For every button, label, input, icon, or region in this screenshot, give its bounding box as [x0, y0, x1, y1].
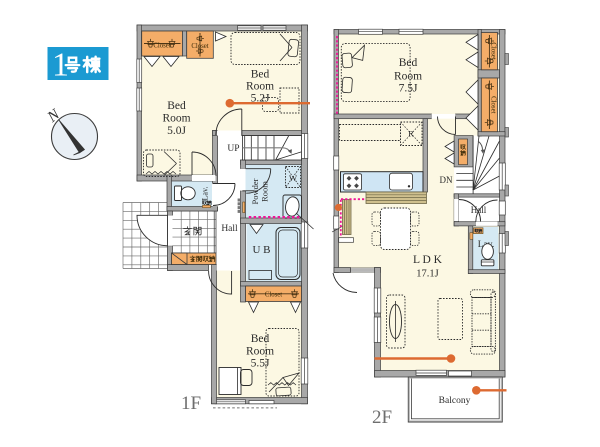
- svg-text:Bed: Bed: [251, 69, 270, 81]
- svg-text:Hall: Hall: [221, 224, 238, 234]
- svg-text:UP: UP: [227, 144, 239, 154]
- svg-text:5.0J: 5.0J: [167, 125, 186, 137]
- svg-text:5.5J: 5.5J: [251, 358, 270, 370]
- svg-text:Bed: Bed: [167, 100, 186, 112]
- svg-text:2F: 2F: [372, 407, 392, 428]
- svg-text:Hall: Hall: [471, 205, 487, 215]
- svg-text:Closet: Closet: [265, 292, 282, 299]
- svg-text:Powder: Powder: [250, 178, 260, 204]
- svg-text:Closet: Closet: [191, 43, 208, 50]
- svg-text:Bed: Bed: [399, 57, 418, 69]
- svg-text:Closet: Closet: [490, 42, 497, 59]
- svg-text:Room: Room: [394, 71, 422, 83]
- svg-text:L D K: L D K: [413, 254, 443, 266]
- svg-text:Lav.: Lav.: [201, 187, 210, 201]
- svg-text:Balcony: Balcony: [439, 396, 471, 406]
- svg-text:Room: Room: [260, 181, 270, 202]
- svg-text:1F: 1F: [181, 393, 201, 414]
- svg-text:Room: Room: [246, 81, 274, 93]
- svg-text:Room: Room: [246, 346, 274, 358]
- svg-text:7.5J: 7.5J: [399, 83, 418, 95]
- svg-text:R: R: [408, 129, 414, 139]
- svg-text:Closet: Closet: [153, 43, 170, 50]
- svg-text:DN: DN: [440, 175, 453, 185]
- svg-text:Closet: Closet: [490, 96, 497, 113]
- svg-text:Room: Room: [162, 113, 190, 125]
- svg-text:W: W: [289, 173, 297, 183]
- svg-text:Bed: Bed: [251, 333, 270, 345]
- svg-text:17.1J: 17.1J: [416, 269, 438, 280]
- svg-text:U B: U B: [252, 244, 270, 256]
